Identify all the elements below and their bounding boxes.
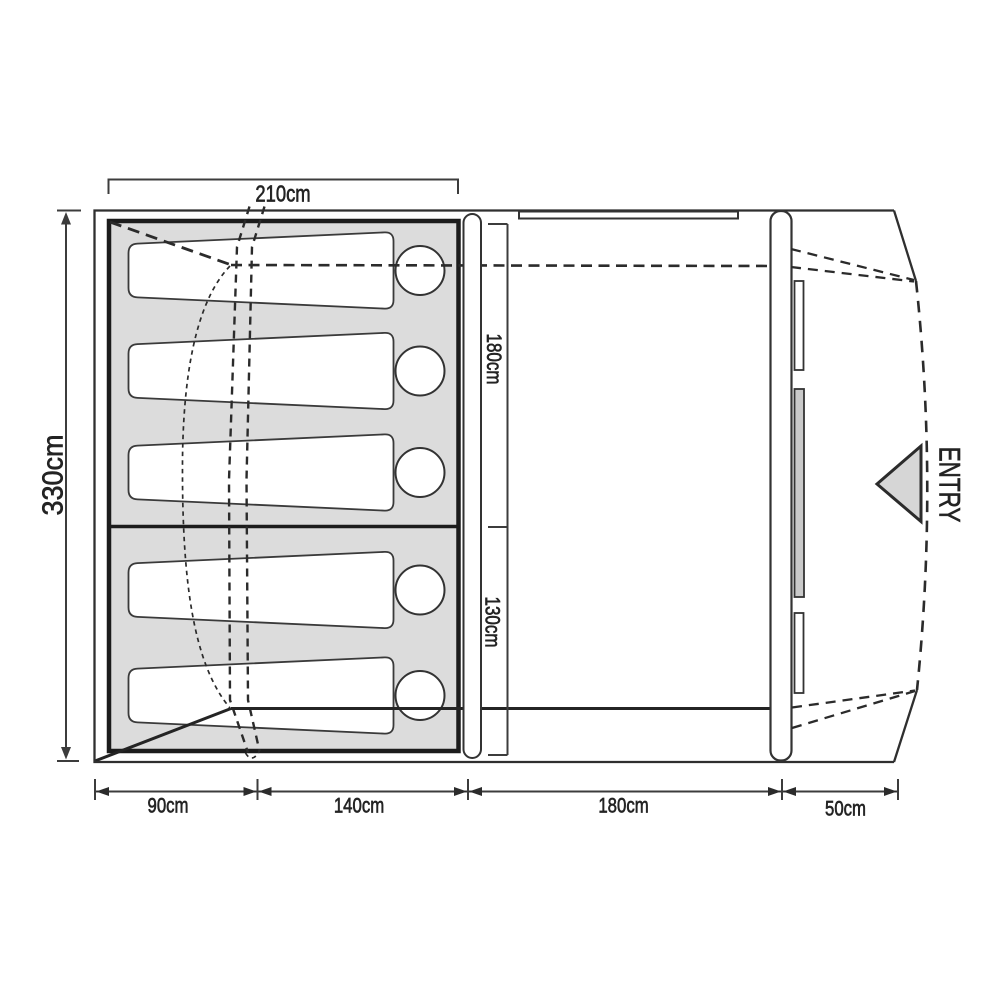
svg-text:130cm: 130cm <box>480 596 503 647</box>
svg-text:90cm: 90cm <box>148 795 189 818</box>
svg-text:180cm: 180cm <box>482 333 505 384</box>
svg-text:210cm: 210cm <box>255 182 310 207</box>
svg-text:ENTRY: ENTRY <box>933 447 967 523</box>
svg-text:180cm: 180cm <box>598 795 648 818</box>
svg-text:330cm: 330cm <box>37 435 69 516</box>
svg-text:140cm: 140cm <box>334 795 384 818</box>
svg-text:50cm: 50cm <box>825 798 866 821</box>
